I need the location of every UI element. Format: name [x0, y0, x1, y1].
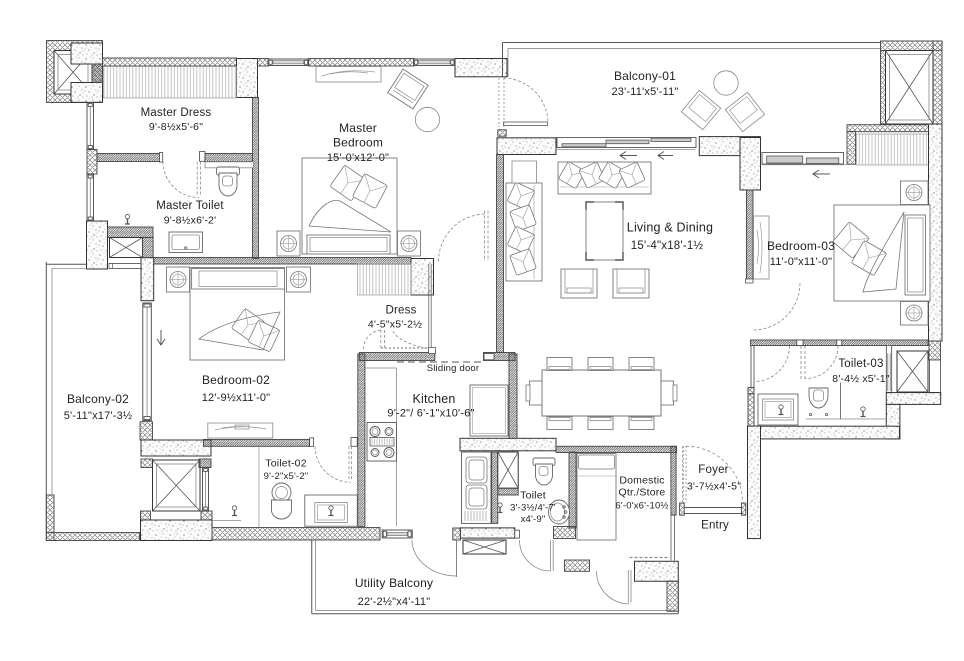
svg-text:Toilet-03: Toilet-03 — [838, 358, 883, 370]
svg-text:9'-8½x6'-2': 9'-8½x6'-2' — [164, 215, 217, 227]
svg-text:9'-2"/ 6'-1"x10'-6": 9'-2"/ 6'-1"x10'-6" — [387, 408, 474, 420]
svg-text:Balcony-02: Balcony-02 — [67, 392, 129, 406]
svg-text:8'-4½ x5'-1": 8'-4½ x5'-1" — [832, 373, 889, 385]
svg-text:Master Dress: Master Dress — [141, 107, 212, 119]
svg-text:22'-2½"x4'-11": 22'-2½"x4'-11" — [358, 596, 431, 608]
svg-text:3'-3½/4'-7': 3'-3½/4'-7' — [510, 503, 556, 514]
svg-text:Toilet: Toilet — [520, 490, 546, 502]
svg-text:15'-0'x12'-0": 15'-0'x12'-0" — [327, 152, 389, 164]
svg-text:Bedroom: Bedroom — [333, 136, 383, 150]
svg-text:Toilet-02: Toilet-02 — [265, 458, 307, 470]
svg-text:Master: Master — [339, 121, 377, 135]
svg-text:Dress: Dress — [385, 305, 416, 317]
svg-text:Kitchen: Kitchen — [412, 392, 455, 406]
svg-text:4'-5"x5'-2½: 4'-5"x5'-2½ — [368, 319, 422, 331]
svg-text:Foyer: Foyer — [698, 464, 728, 476]
svg-text:Utility Balcony: Utility Balcony — [355, 576, 433, 590]
svg-text:Balcony-01: Balcony-01 — [614, 69, 676, 83]
svg-text:Entry: Entry — [701, 520, 729, 532]
svg-text:Qtr./Store: Qtr./Store — [619, 487, 666, 499]
svg-text:9'-2"x5'-2": 9'-2"x5'-2" — [264, 471, 309, 482]
svg-text:Domestic: Domestic — [619, 475, 664, 487]
svg-text:9'-8½x5'-6": 9'-8½x5'-6" — [149, 121, 203, 133]
svg-text:Living & Dining: Living & Dining — [627, 221, 713, 235]
svg-text:Sliding door: Sliding door — [427, 363, 480, 374]
svg-text:5'-11"x17'-3½: 5'-11"x17'-3½ — [64, 410, 133, 422]
svg-text:3'-7½x4'-5": 3'-7½x4'-5" — [687, 481, 741, 493]
svg-text:x4'-9": x4'-9" — [521, 514, 546, 525]
svg-text:Bedroom-02: Bedroom-02 — [202, 373, 270, 387]
svg-text:12'-9½x11'-0": 12'-9½x11'-0" — [202, 392, 271, 404]
svg-text:Bedroom-03: Bedroom-03 — [767, 239, 835, 253]
svg-text:23'-11'x5'-11": 23'-11'x5'-11" — [611, 86, 678, 98]
svg-text:Master Toilet: Master Toilet — [156, 200, 224, 212]
svg-text:15'-4"x18'-1½: 15'-4"x18'-1½ — [631, 240, 704, 252]
svg-text:11'-0"x11'-0": 11'-0"x11'-0" — [770, 256, 833, 268]
svg-text:6'-0'x6'-10½: 6'-0'x6'-10½ — [615, 501, 668, 512]
